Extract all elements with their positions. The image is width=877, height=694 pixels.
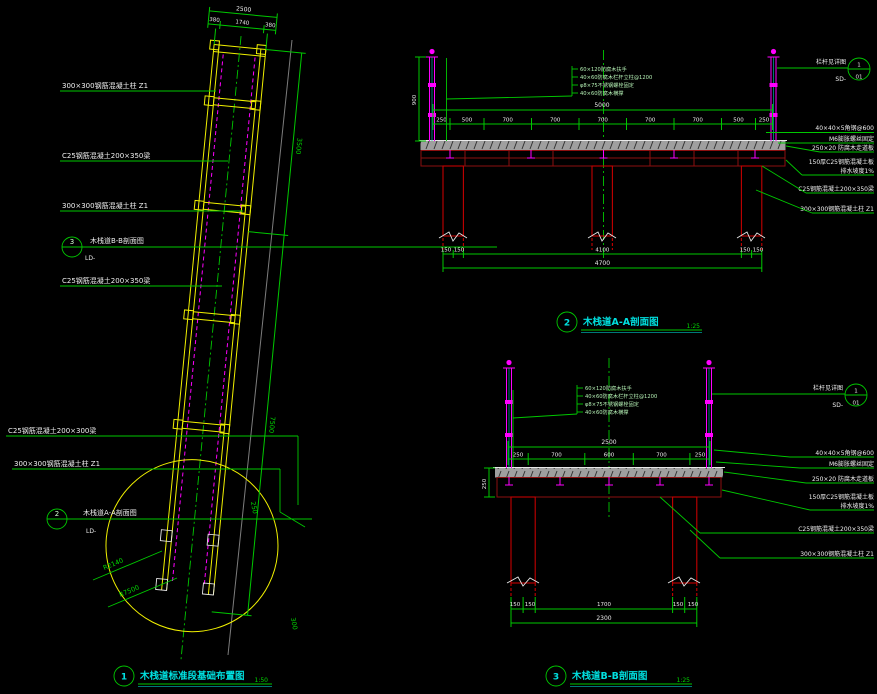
section-a-view: 900 5000 250 500 700 700 700 700 700 500… [412, 49, 874, 333]
section-bubble-b-label: 木栈道B-B剖面图 [90, 236, 144, 245]
rail-cap-left [429, 49, 434, 54]
label-column: 300×300钢筋混凝土柱 Z1 [800, 205, 874, 213]
break-line [507, 577, 539, 586]
section-b-view: 250 2500 250 700 600 700 250 60×120防腐木扶手… [482, 358, 874, 687]
rail-note: 40×60防腐木横撑 [580, 89, 624, 97]
section-a-deck-bolts [446, 150, 759, 158]
dim-seg: 250 [436, 118, 447, 124]
section-a-title-text: 木栈道A-A剖面图 [582, 316, 659, 328]
plan-title-scale: 1:50 [255, 677, 269, 684]
dim-seg: 150 [454, 248, 465, 254]
section-b-labels: 40×40×5角钢@600 M6膨胀螺丝固定 250×20 防腐木走道板 150… [660, 449, 874, 558]
label-beam: C25钢筋混凝土200×350梁 [798, 525, 874, 533]
dim-seg: 700 [656, 453, 667, 459]
dim-seg: 700 [597, 118, 608, 124]
plan-dim-d2: 300 [289, 617, 299, 631]
section-a-bottom-dims: 150 150 4100 150 150 4700 [441, 248, 764, 273]
section-b-left-dim: 250 [482, 468, 495, 497]
dim-seg: 150 [688, 602, 699, 608]
plan-title-text: 木栈道标准段基础布置图 [139, 670, 245, 682]
section-a-title-number: 2 [564, 319, 570, 329]
detail-num-bottom: 01 [856, 75, 863, 81]
section-a-left-dim: 900 [412, 57, 426, 141]
plan-section-bubble-b: 3 木栈道B-B剖面图 LD- [62, 236, 497, 262]
plan-label-beam-1: C25钢筋混凝土200×350梁 [62, 151, 150, 160]
rail-note: 60×120防腐木扶手 [580, 65, 627, 73]
dim-seg: 700 [645, 118, 656, 124]
section-b-deck-bolts [505, 477, 713, 485]
dim-seg: 500 [733, 118, 744, 124]
dim-seg: 700 [692, 118, 703, 124]
section-a-rail-notes: 60×120防腐木扶手 40×60防腐木栏杆立柱@1200 φ8×75不锈钢螺栓… [447, 58, 653, 141]
dim-seg: 150 [753, 248, 764, 254]
section-a-rail-height: 900 [412, 94, 418, 105]
section-a-title-scale: 1:25 [687, 323, 701, 330]
section-a-top-dims: 5000 250 500 700 700 700 700 700 500 250 [433, 102, 773, 130]
cad-canvas: 2500 380 1740 380 3500 7500 R2140 R7500 … [0, 0, 877, 694]
plan-label-column-2: 300×300钢筋混凝土柱 Z1 [62, 201, 148, 210]
plan-dim-total: 2500 [236, 5, 252, 13]
section-b-depth: 250 [482, 478, 488, 489]
section-b-dim-total: 2500 [601, 439, 616, 446]
section-bubble-a-label: 木栈道A-A剖面图 [83, 508, 137, 517]
plan-radius-annotations: R2140 R7500 250 300 [93, 501, 299, 631]
section-a-deck [421, 141, 786, 151]
plan-label-beam-2: C25钢筋混凝土200×350梁 [62, 276, 150, 285]
plan-view: 2500 380 1740 380 3500 7500 R2140 R7500 … [6, 0, 497, 686]
section-bubble-a-ref: LD- [86, 528, 96, 535]
section-a-dim-bottom-total: 4700 [595, 260, 610, 267]
rail-note: 40×60防腐木横撑 [585, 408, 629, 416]
detail-label: 栏杆见详图 [816, 58, 846, 66]
dim-seg: 700 [502, 118, 513, 124]
dim-seg: 4100 [595, 248, 609, 254]
section-b-title-block: 3 木栈道B-B剖面图 1:25 [546, 666, 692, 687]
dim-seg: 250 [759, 118, 770, 124]
rail-note: 60×120防腐木扶手 [585, 384, 632, 392]
section-b-deck [495, 468, 723, 478]
dim-seg: 150 [740, 248, 751, 254]
plan-dim-d1: 250 [249, 501, 259, 515]
detail-ref: SD- [832, 402, 843, 409]
plan-callouts: 300×300钢筋混凝土柱 Z1 C25钢筋混凝土200×350梁 300×30… [6, 81, 305, 527]
dim-seg: 150 [525, 602, 536, 608]
section-bubble-a-number: 2 [55, 510, 59, 518]
section-bubble-b-number: 3 [70, 238, 74, 246]
plan-section-bubble-a: 2 木栈道A-A剖面图 LD- [47, 508, 312, 535]
rail-note: 40×60防腐木栏杆立柱@1200 [585, 392, 657, 400]
section-a-title-block: 2 木栈道A-A剖面图 1:25 [557, 312, 702, 333]
section-b-columns [507, 497, 700, 597]
plan-dim-len1: 3500 [294, 137, 304, 154]
section-a-right-railing [768, 49, 780, 141]
label-slope: 排水坡度1% [840, 502, 874, 510]
section-a-columns [439, 166, 765, 250]
dim-seg: 150 [510, 602, 521, 608]
section-b-detail-bubble: 栏杆见详图 SD- 1 01 [712, 384, 867, 409]
plan-dim-seg1: 380 [209, 17, 221, 24]
label-bolt: M6膨胀螺丝固定 [829, 460, 874, 468]
detail-ref: SD- [835, 76, 846, 83]
section-a-left-railing [426, 49, 438, 141]
plan-top-dims: 2500 380 1740 380 [206, 3, 278, 50]
dim-seg: 150 [673, 602, 684, 608]
plan-dim-seg3: 380 [265, 22, 277, 29]
dim-seg: 150 [441, 248, 452, 254]
plan-dim-len2: 7500 [267, 416, 277, 433]
section-b-title-text: 木栈道B-B剖面图 [571, 670, 647, 682]
dim-seg: 250 [695, 453, 706, 459]
plan-label-column-1: 300×300钢筋混凝土柱 Z1 [62, 81, 148, 90]
section-bubble-b-ref: LD- [85, 255, 95, 262]
section-b-title-number: 3 [553, 673, 559, 683]
plan-label-column-3: 300×300钢筋混凝土柱 Z1 [14, 459, 100, 468]
label-slab: 150厚C25钢筋混凝土板 [809, 493, 874, 501]
label-bolt: M6膨胀螺丝固定 [829, 135, 874, 143]
dim-seg: 500 [462, 118, 473, 124]
label-slope: 排水坡度1% [840, 167, 874, 175]
plan-frame: 2500 380 1740 380 3500 7500 [95, 0, 329, 669]
label-angle-steel: 40×40×5角钢@600 [815, 124, 874, 132]
section-a-detail-bubble: 栏杆见详图 SD- 1 01 [777, 58, 870, 83]
dim-seg: 250 [513, 453, 524, 459]
section-b-title-scale: 1:25 [677, 677, 691, 684]
detail-num-bottom: 01 [853, 401, 860, 407]
plan-title-number: 1 [121, 673, 127, 683]
label-deck-board: 250×20 防腐木走道板 [812, 475, 874, 483]
dim-seg: 1700 [597, 602, 611, 608]
dim-seg: 600 [604, 453, 615, 459]
label-column: 300×300钢筋混凝土柱 Z1 [800, 550, 874, 558]
detail-num-top: 1 [854, 389, 858, 395]
section-a-dim-total: 5000 [594, 102, 609, 109]
label-angle-steel: 40×40×5角钢@600 [815, 449, 874, 457]
detail-num-top: 1 [857, 63, 861, 69]
rail-note: φ8×75不锈钢螺栓固定 [580, 81, 634, 89]
section-b-dim-bottom-total: 2300 [596, 615, 611, 622]
rail-note: φ8×75不锈钢螺栓固定 [585, 400, 639, 408]
dim-seg: 700 [551, 453, 562, 459]
rail-note: 40×60防腐木栏杆立柱@1200 [580, 73, 652, 81]
label-deck-board: 250×20 防腐木走道板 [812, 144, 874, 152]
plan-dim-seg2: 1740 [235, 19, 250, 26]
plan-radius-2: R7500 [118, 583, 141, 599]
label-beam: C25钢筋混凝土200×350梁 [798, 185, 874, 193]
rail-cap-right [771, 49, 776, 54]
dim-seg: 700 [550, 118, 561, 124]
plan-title-block: 1 木栈道标准段基础布置图 1:50 [114, 666, 272, 687]
plan-radius-1: R2140 [102, 556, 125, 572]
section-b-bottom-dims: 150 150 1700 150 150 2300 [510, 597, 699, 627]
cad-drawing: 2500 380 1740 380 3500 7500 R2140 R7500 … [0, 0, 877, 694]
label-slab: 150厚C25钢筋混凝土板 [809, 158, 874, 166]
detail-label: 栏杆见详图 [813, 384, 843, 392]
plan-label-beam-3: C25钢筋混凝土200×300梁 [8, 426, 96, 435]
